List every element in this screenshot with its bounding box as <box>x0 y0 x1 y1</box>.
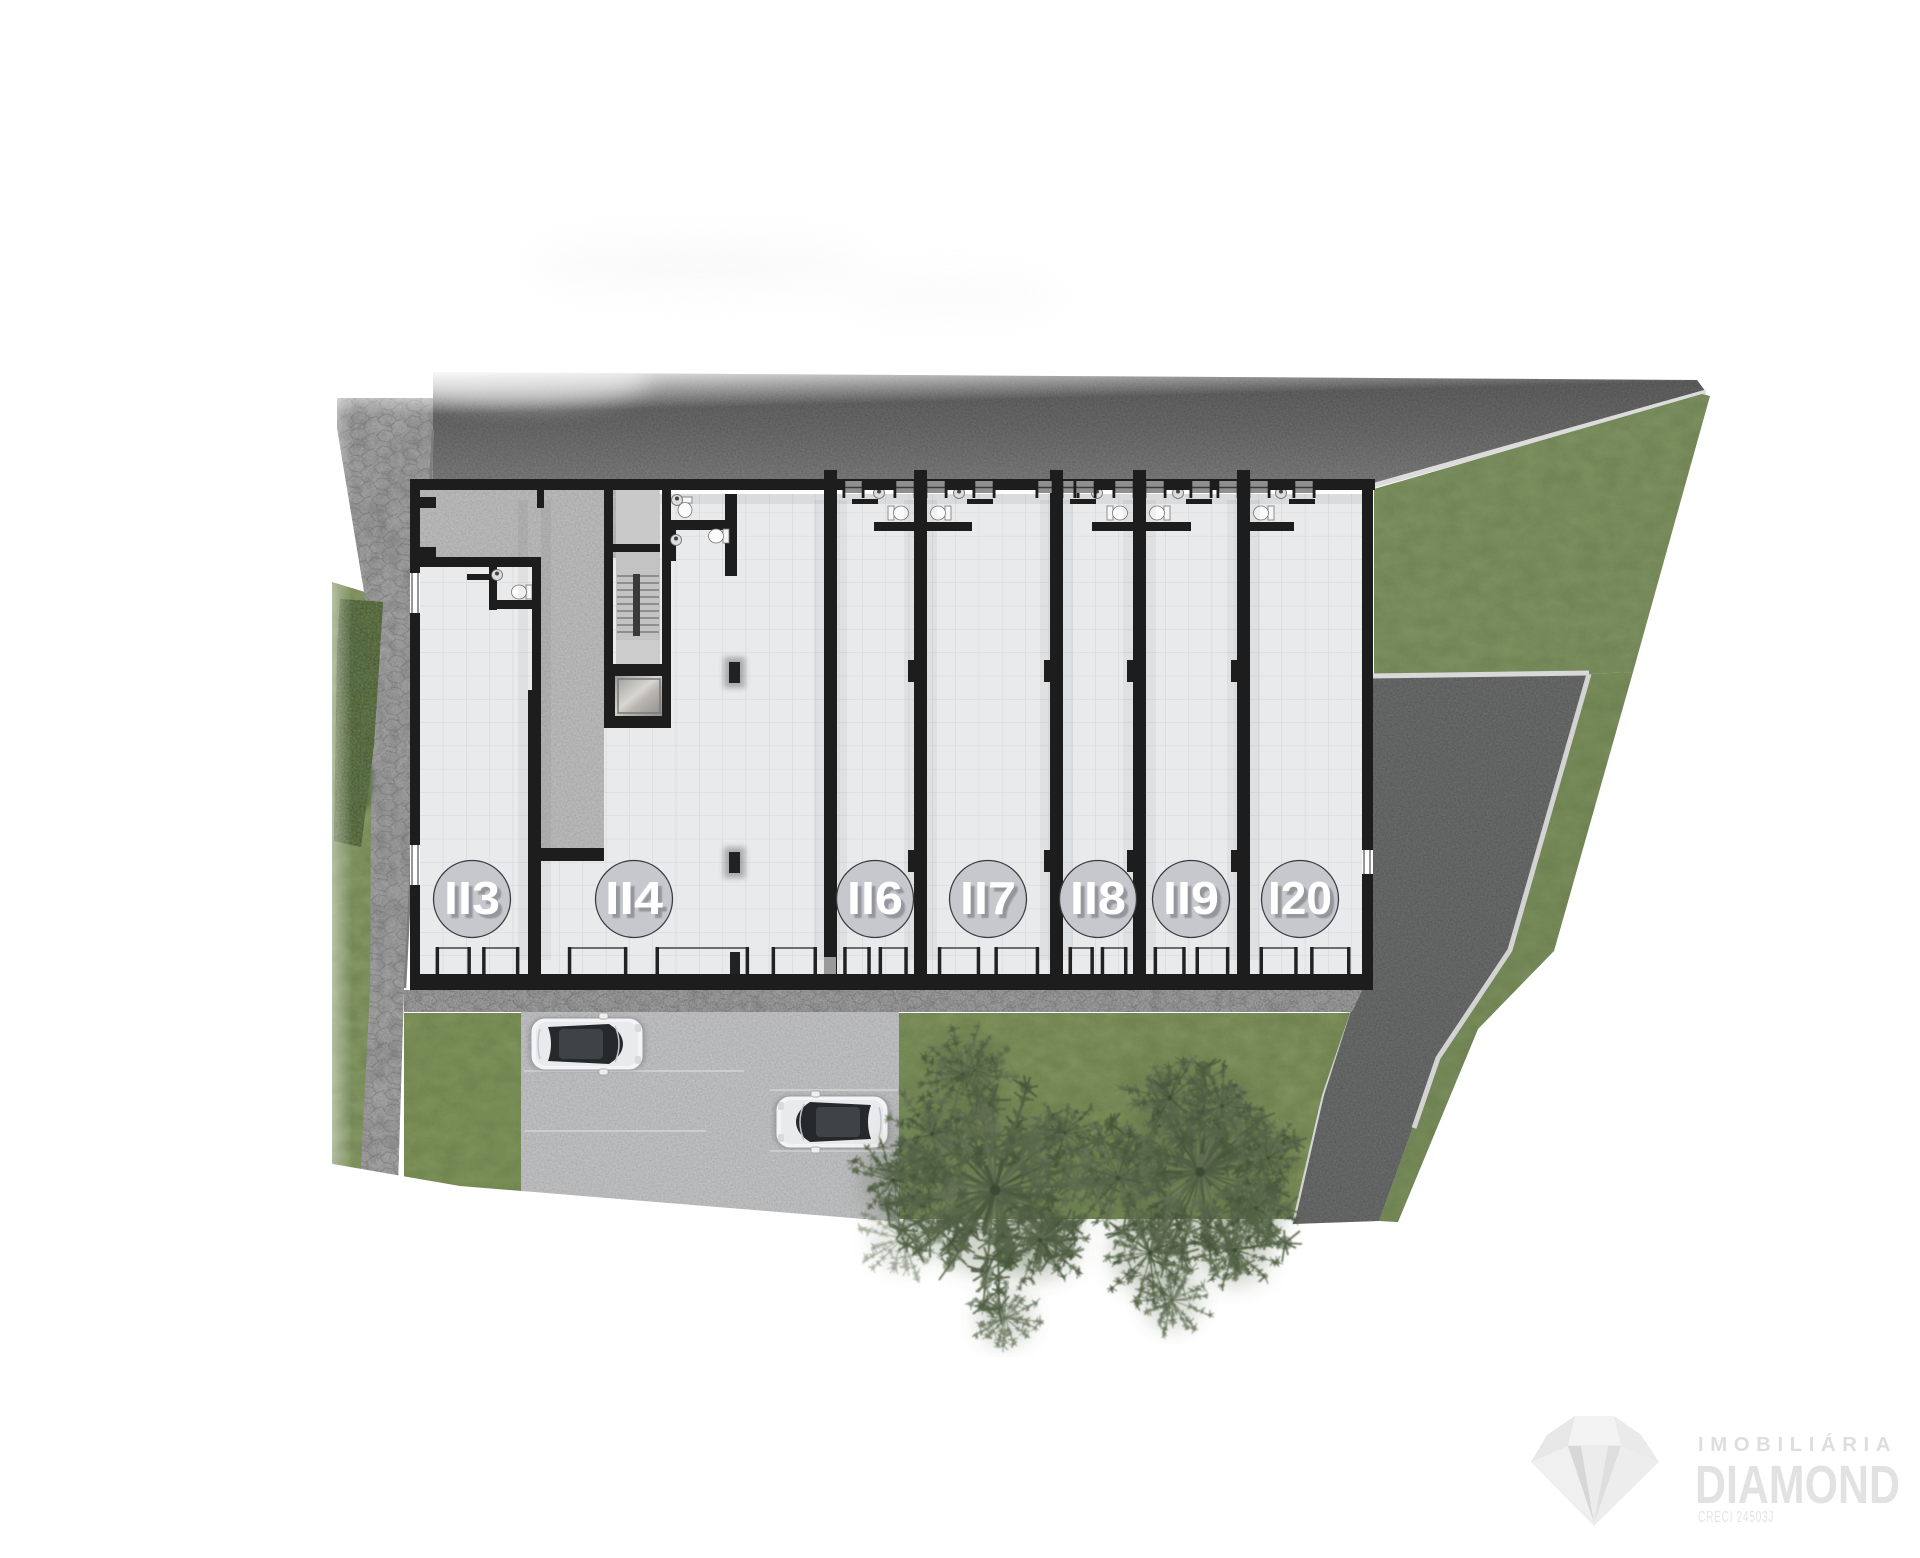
svg-text:DIAMOND: DIAMOND <box>1695 1455 1900 1515</box>
svg-text:II9: II9 <box>1163 872 1219 924</box>
svg-text:II4: II4 <box>605 872 663 924</box>
svg-text:CRECI 24503J: CRECI 24503J <box>1698 1509 1774 1526</box>
svg-text:II6: II6 <box>847 872 903 924</box>
svg-text:I20: I20 <box>1268 872 1332 924</box>
svg-text:II3: II3 <box>444 872 500 924</box>
svg-text:II7: II7 <box>960 872 1016 924</box>
svg-text:II8: II8 <box>1070 872 1126 924</box>
svg-text:IMOBILIÁRIA: IMOBILIÁRIA <box>1698 1433 1897 1456</box>
